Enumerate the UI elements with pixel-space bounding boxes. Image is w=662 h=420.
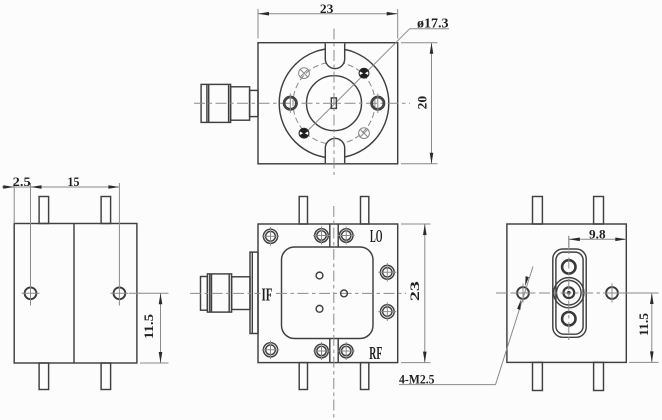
- svg-text:ø17.3: ø17.3: [417, 17, 449, 32]
- svg-text:4-M2.5: 4-M2.5: [399, 371, 435, 386]
- svg-text:LO: LO: [370, 226, 383, 246]
- svg-text:2.5: 2.5: [13, 175, 31, 189]
- svg-text:9.8: 9.8: [589, 227, 606, 241]
- svg-text:15: 15: [68, 175, 80, 189]
- svg-text:11.5: 11.5: [142, 314, 156, 339]
- svg-text:IF: IF: [262, 285, 273, 305]
- svg-text:RF: RF: [369, 343, 382, 363]
- svg-text:11.5: 11.5: [637, 313, 651, 336]
- svg-text:23: 23: [408, 281, 422, 301]
- svg-text:23: 23: [320, 2, 334, 16]
- svg-text:20: 20: [416, 96, 430, 110]
